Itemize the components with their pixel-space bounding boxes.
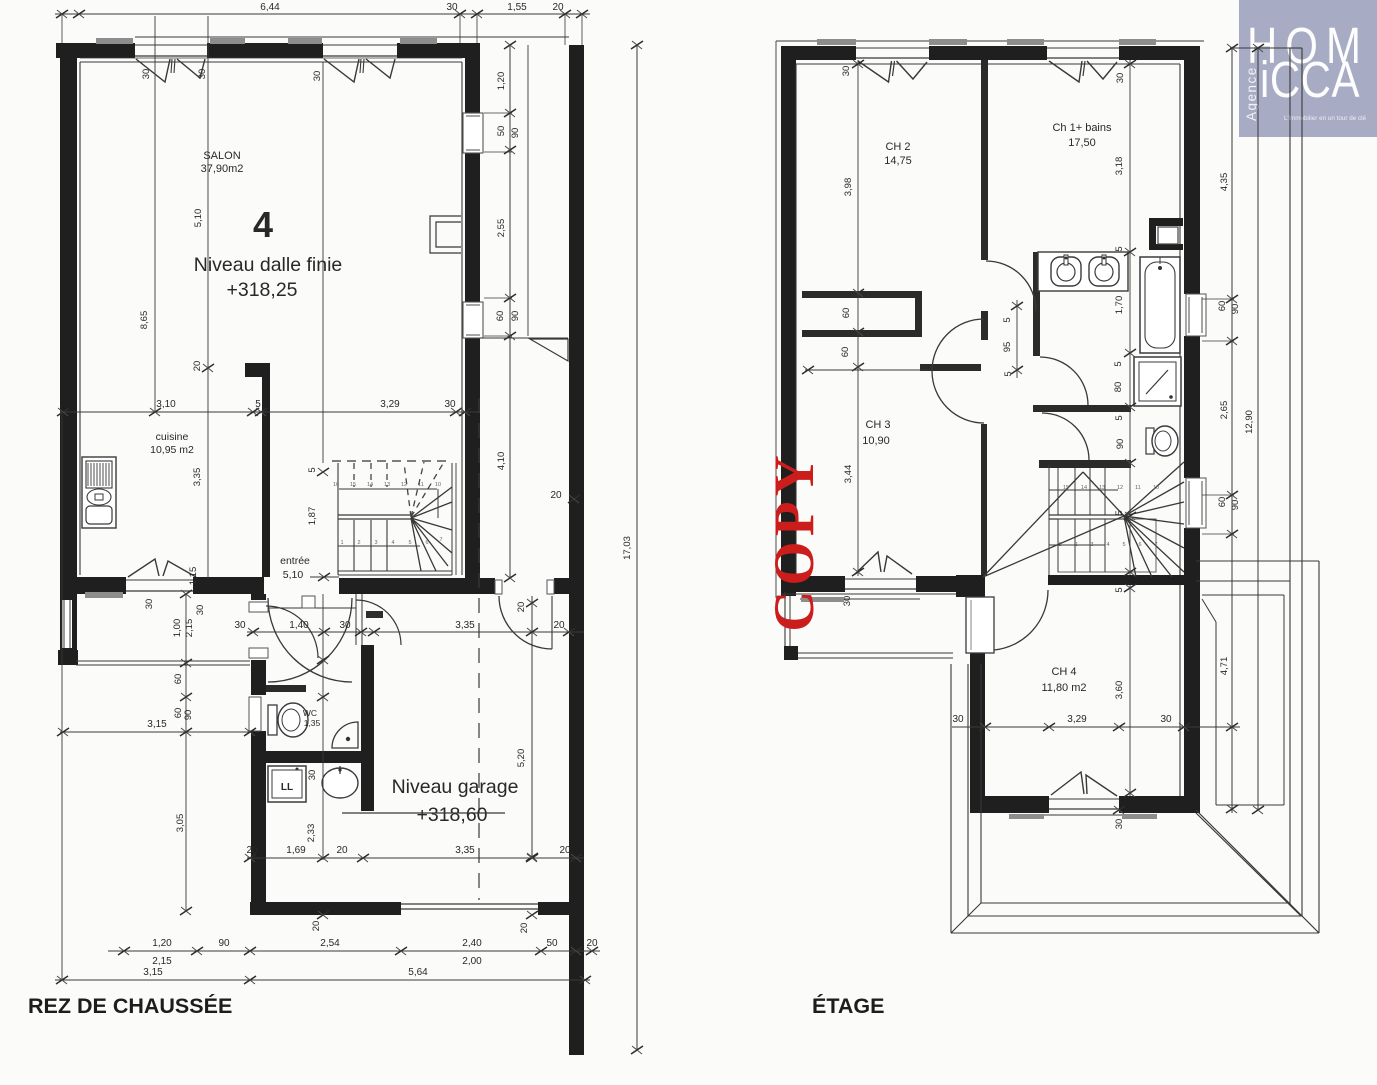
svg-text:20: 20 — [519, 923, 530, 934]
svg-text:12: 12 — [401, 482, 407, 488]
svg-text:3: 3 — [374, 540, 377, 546]
svg-text:3,60: 3,60 — [1114, 681, 1125, 700]
svg-text:CH 3: CH 3 — [865, 419, 890, 431]
svg-text:3,35: 3,35 — [455, 845, 475, 856]
svg-text:37,90m2: 37,90m2 — [201, 163, 244, 175]
svg-text:2,33: 2,33 — [306, 824, 317, 843]
svg-text:LL: LL — [281, 782, 293, 793]
svg-text:1,20: 1,20 — [152, 938, 172, 949]
svg-text:5,10: 5,10 — [193, 209, 204, 228]
svg-text:90: 90 — [1115, 439, 1126, 450]
svg-text:20: 20 — [552, 2, 564, 13]
svg-text:3,05: 3,05 — [175, 814, 186, 833]
svg-text:20: 20 — [336, 845, 348, 856]
svg-text:6: 6 — [425, 540, 428, 546]
svg-text:3,29: 3,29 — [1067, 714, 1087, 725]
svg-text:13: 13 — [1099, 485, 1105, 491]
svg-text:5: 5 — [1114, 415, 1125, 420]
svg-text:5: 5 — [1002, 317, 1013, 322]
svg-text:30: 30 — [195, 605, 206, 616]
svg-text:13: 13 — [384, 482, 390, 488]
svg-text:30: 30 — [141, 69, 152, 80]
svg-text:80: 80 — [1113, 382, 1124, 393]
svg-text:3,10: 3,10 — [156, 399, 176, 410]
svg-text:5: 5 — [1114, 246, 1125, 251]
svg-text:30: 30 — [952, 714, 964, 725]
svg-text:1,35: 1,35 — [304, 718, 321, 728]
svg-text:11: 11 — [418, 482, 424, 488]
svg-text:14,75: 14,75 — [884, 155, 912, 167]
svg-text:Niveau garage: Niveau garage — [392, 776, 519, 798]
svg-text:3,35: 3,35 — [192, 468, 203, 487]
svg-text:Ch 1+ bains: Ch 1+ bains — [1052, 122, 1112, 134]
svg-text:50: 50 — [496, 126, 507, 137]
svg-text:10: 10 — [435, 482, 441, 488]
svg-text:17,03: 17,03 — [622, 536, 633, 560]
svg-text:5: 5 — [1114, 587, 1125, 592]
svg-text:30: 30 — [446, 2, 458, 13]
svg-text:1,20: 1,20 — [496, 72, 507, 91]
svg-text:2,40: 2,40 — [462, 938, 482, 949]
svg-text:16: 16 — [333, 482, 339, 488]
svg-text:8,65: 8,65 — [139, 311, 150, 330]
svg-text:60: 60 — [1217, 497, 1228, 508]
svg-text:Agence: Agence — [1244, 66, 1259, 121]
svg-text:5,20: 5,20 — [516, 749, 527, 768]
svg-text:30: 30 — [144, 599, 155, 610]
svg-text:5: 5 — [408, 540, 411, 546]
svg-text:entrée: entrée — [280, 555, 310, 567]
svg-text:30: 30 — [841, 66, 852, 77]
svg-text:60: 60 — [495, 311, 506, 322]
svg-text:5,64: 5,64 — [408, 967, 428, 978]
svg-text:2: 2 — [1074, 542, 1077, 548]
svg-text:14: 14 — [1081, 485, 1087, 491]
svg-text:5: 5 — [1003, 371, 1014, 376]
svg-text:90: 90 — [183, 710, 194, 721]
svg-text:3,18: 3,18 — [1114, 157, 1125, 176]
svg-text:60: 60 — [840, 347, 851, 358]
svg-text:30: 30 — [339, 620, 351, 631]
svg-text:2,55: 2,55 — [496, 219, 507, 238]
svg-text:4,10: 4,10 — [496, 452, 507, 471]
svg-text:20: 20 — [192, 361, 203, 372]
svg-text:REZ DE CHAUSSÉE: REZ DE CHAUSSÉE — [28, 993, 232, 1018]
svg-text:30: 30 — [1114, 819, 1125, 830]
svg-text:1,70: 1,70 — [1114, 296, 1125, 315]
svg-text:95: 95 — [1002, 342, 1013, 353]
svg-text:1,87: 1,87 — [307, 507, 318, 526]
svg-text:4,35: 4,35 — [1219, 173, 1230, 192]
svg-text:3,29: 3,29 — [380, 399, 400, 410]
svg-text:30: 30 — [197, 69, 208, 80]
svg-text:ÉTAGE: ÉTAGE — [812, 993, 884, 1018]
svg-text:11: 11 — [1135, 485, 1141, 491]
svg-text:90: 90 — [510, 311, 521, 322]
svg-text:4,71: 4,71 — [1219, 657, 1230, 676]
svg-text:30: 30 — [307, 770, 318, 781]
svg-text:5: 5 — [1122, 542, 1125, 548]
svg-text:2: 2 — [357, 540, 360, 546]
svg-text:5: 5 — [1114, 510, 1125, 515]
svg-text:14: 14 — [367, 482, 373, 488]
svg-text:20: 20 — [246, 845, 258, 856]
svg-text:10,90: 10,90 — [862, 435, 890, 447]
svg-text:6: 6 — [1138, 542, 1141, 548]
svg-text:1,00: 1,00 — [172, 619, 183, 638]
svg-text:3,15: 3,15 — [143, 967, 163, 978]
svg-text:4: 4 — [253, 204, 273, 245]
svg-text:1,40: 1,40 — [289, 620, 309, 631]
svg-text:2,00: 2,00 — [462, 956, 482, 967]
svg-text:10: 10 — [1153, 485, 1159, 491]
svg-text:20: 20 — [559, 845, 571, 856]
svg-text:3,15: 3,15 — [147, 719, 167, 730]
svg-text:+318,25: +318,25 — [226, 279, 297, 301]
svg-text:7: 7 — [1154, 542, 1157, 548]
svg-text:CH 4: CH 4 — [1051, 666, 1076, 678]
svg-text:90: 90 — [510, 128, 521, 139]
svg-text:20: 20 — [311, 921, 322, 932]
svg-text:WC: WC — [303, 708, 317, 718]
svg-text:4: 4 — [1106, 542, 1109, 548]
svg-text:60: 60 — [173, 674, 184, 685]
svg-text:L'immobilier en un tour de clé: L'immobilier en un tour de clé — [1284, 115, 1367, 122]
svg-text:30: 30 — [312, 71, 323, 82]
svg-text:2,15: 2,15 — [152, 956, 172, 967]
svg-text:12: 12 — [1117, 485, 1123, 491]
svg-text:5: 5 — [1113, 361, 1124, 366]
svg-text:20: 20 — [516, 602, 527, 613]
svg-text:3,35: 3,35 — [455, 620, 475, 631]
svg-text:COPY: COPY — [763, 450, 826, 631]
svg-text:3: 3 — [1090, 542, 1093, 548]
svg-text:60: 60 — [841, 308, 852, 319]
svg-text:cuisine: cuisine — [156, 431, 189, 443]
svg-text:5: 5 — [255, 399, 261, 410]
svg-text:7: 7 — [439, 537, 442, 543]
svg-text:17,50: 17,50 — [1068, 137, 1096, 149]
svg-text:90: 90 — [1230, 304, 1241, 315]
svg-text:12,90: 12,90 — [1244, 410, 1255, 434]
svg-text:6,44: 6,44 — [260, 2, 280, 13]
svg-text:5,10: 5,10 — [283, 569, 304, 581]
svg-text:50: 50 — [546, 938, 558, 949]
svg-text:1,69: 1,69 — [286, 845, 306, 856]
svg-text:2,54: 2,54 — [320, 938, 340, 949]
svg-text:1,15: 1,15 — [188, 567, 199, 586]
svg-text:Niveau dalle finie: Niveau dalle finie — [194, 254, 343, 276]
svg-text:CH 2: CH 2 — [885, 141, 910, 153]
svg-text:iCCA: iCCA — [1260, 51, 1360, 108]
svg-text:15: 15 — [1063, 485, 1069, 491]
svg-text:20: 20 — [553, 620, 565, 631]
svg-text:2,15: 2,15 — [184, 619, 195, 638]
svg-text:+318,60: +318,60 — [416, 804, 487, 826]
svg-text:90: 90 — [218, 938, 230, 949]
svg-text:30: 30 — [444, 399, 456, 410]
svg-text:2,65: 2,65 — [1219, 401, 1230, 420]
svg-text:30: 30 — [1160, 714, 1172, 725]
svg-text:3,98: 3,98 — [843, 178, 854, 197]
svg-text:1: 1 — [1058, 542, 1061, 548]
svg-text:11,80 m2: 11,80 m2 — [1041, 682, 1086, 694]
svg-text:30: 30 — [1115, 73, 1126, 84]
svg-text:20: 20 — [586, 938, 598, 949]
svg-text:1,55: 1,55 — [507, 2, 527, 13]
svg-text:3,44: 3,44 — [843, 465, 854, 484]
svg-text:30: 30 — [234, 620, 246, 631]
svg-text:4: 4 — [391, 540, 394, 546]
svg-text:SALON: SALON — [203, 150, 240, 162]
svg-text:10,95 m2: 10,95 m2 — [150, 444, 194, 456]
svg-text:1: 1 — [340, 540, 343, 546]
svg-text:60: 60 — [1217, 301, 1228, 312]
svg-text:15: 15 — [350, 482, 356, 488]
svg-text:20: 20 — [550, 490, 562, 501]
svg-text:5: 5 — [307, 467, 318, 472]
svg-text:90: 90 — [1230, 500, 1241, 511]
